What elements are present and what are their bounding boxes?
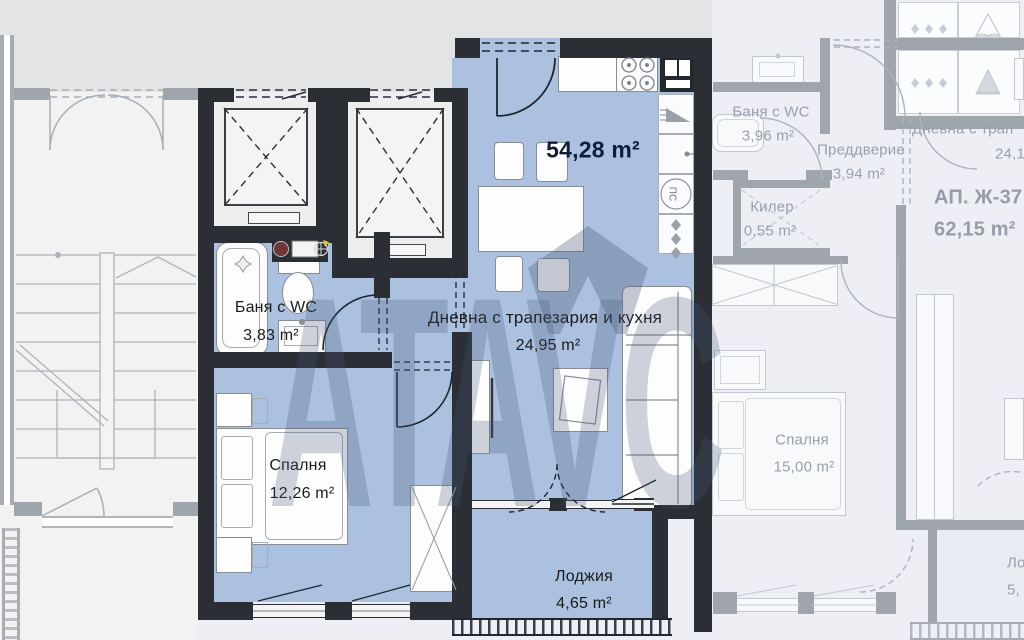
loggia-area: 4,65 m² xyxy=(556,595,612,613)
neighbor-vestibule-label: Преддверие xyxy=(817,142,905,159)
neighbor-living-area: 24,1 xyxy=(995,146,1024,163)
neighbor-loggia-label: Ло xyxy=(1007,555,1024,572)
stove-burners xyxy=(622,58,654,90)
bathroom-label: Баня с WC xyxy=(235,299,317,317)
radiator-icon xyxy=(671,219,681,259)
elevator-doors xyxy=(236,90,432,99)
entrance-door xyxy=(482,43,558,116)
bedroom-label: Спалня xyxy=(269,457,326,475)
neighbor-bathroom-label: Баня с WC xyxy=(732,104,809,121)
stairwell-double-door xyxy=(50,90,163,150)
neighbor-bathroom-area: 3,96 m² xyxy=(742,128,794,145)
loggia-doors xyxy=(509,464,656,512)
neighbor-loggia-area: 5, xyxy=(1007,582,1020,599)
neighbor-window-lines xyxy=(735,585,878,605)
neighbor-unit-label: АП. Ж-37 xyxy=(934,187,1022,210)
neighbor-bedroom-area: 15,00 m² xyxy=(774,459,835,476)
vent-icon xyxy=(660,108,690,122)
bedroom-area: 12,26 m² xyxy=(270,485,335,503)
bathroom-area: 3,83 m² xyxy=(243,327,299,345)
bathroom-door xyxy=(323,295,387,350)
neighbor-closet-area: 0,55 m² xyxy=(744,223,796,240)
vanity-fixtures xyxy=(274,240,330,257)
utility-shaft-label: ПС xyxy=(666,187,677,201)
utility-shaft-icon: ПС xyxy=(661,179,691,209)
loggia-label: Лоджия xyxy=(555,568,613,586)
neighbor-bedroom-label: Спалня xyxy=(775,432,829,449)
living-room-label: Дневна с трапезария и кухня xyxy=(428,308,662,328)
staircase xyxy=(16,252,196,469)
fridge-handle xyxy=(685,152,695,157)
wardrobe-x xyxy=(412,487,456,590)
floor-plan: ПС xyxy=(0,0,1024,640)
neighbor-unit-area: 62,15 m² xyxy=(934,219,1016,242)
valve-star-icon xyxy=(235,256,251,272)
neighbor-living-label: Дневна с трап xyxy=(912,121,1014,138)
corridor-door xyxy=(42,488,104,516)
elevator-shaft-x xyxy=(224,108,444,238)
window-marks xyxy=(253,585,410,611)
main-total-area-label: 54,28 m² xyxy=(546,137,640,164)
neighbor-vestibule-area: 3,94 m² xyxy=(833,166,885,183)
neighbor-fixture-icons xyxy=(911,14,1000,94)
faucet-dot xyxy=(299,54,781,326)
living-room-area: 24,95 m² xyxy=(516,337,581,355)
bedroom-door xyxy=(394,362,452,427)
coffee-table-inner xyxy=(559,376,600,424)
neighbor-closet-label: Килер xyxy=(750,199,794,216)
